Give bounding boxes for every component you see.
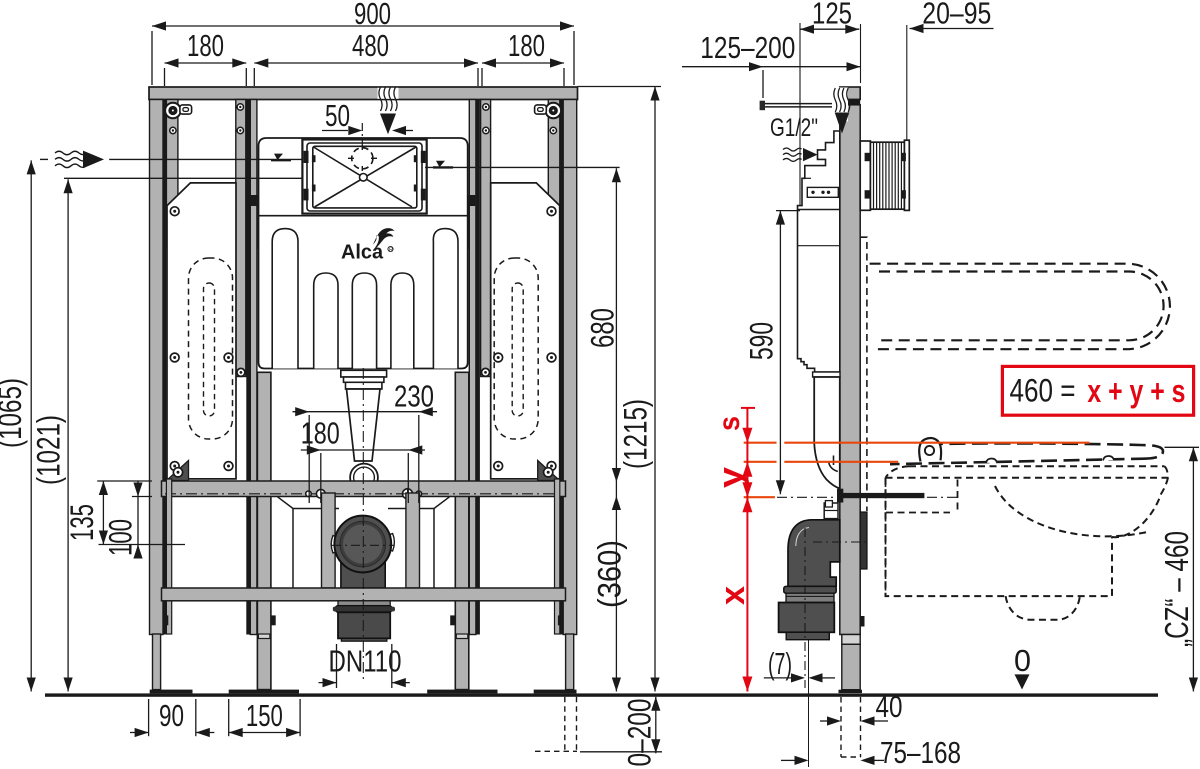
svg-text:x + y + s: x + y + s bbox=[1087, 373, 1185, 409]
svg-text:R: R bbox=[389, 248, 393, 254]
svg-text:G1/2": G1/2" bbox=[770, 114, 818, 142]
svg-text:135: 135 bbox=[64, 504, 100, 541]
svg-text:680: 680 bbox=[585, 308, 621, 348]
svg-text:0–200: 0–200 bbox=[622, 699, 658, 767]
svg-text:460 =: 460 = bbox=[1010, 373, 1076, 409]
svg-text:s: s bbox=[713, 416, 746, 431]
svg-text:150: 150 bbox=[246, 698, 283, 733]
svg-text:180: 180 bbox=[508, 28, 545, 63]
svg-text:125: 125 bbox=[812, 0, 852, 31]
svg-text:50: 50 bbox=[325, 98, 350, 133]
svg-text:„CZ“ – 460: „CZ“ – 460 bbox=[1158, 531, 1195, 647]
svg-text:(1021): (1021) bbox=[31, 415, 67, 485]
svg-text:(7): (7) bbox=[768, 646, 792, 681]
svg-text:100: 100 bbox=[103, 519, 139, 556]
svg-text:230: 230 bbox=[394, 379, 434, 414]
svg-text:180: 180 bbox=[301, 416, 340, 451]
svg-text:20–95: 20–95 bbox=[922, 0, 991, 31]
svg-text:180: 180 bbox=[187, 28, 224, 63]
svg-text:0: 0 bbox=[1014, 643, 1031, 678]
svg-text:40: 40 bbox=[876, 689, 903, 724]
svg-text:x: x bbox=[714, 586, 752, 605]
svg-text:90: 90 bbox=[159, 698, 184, 733]
svg-text:590: 590 bbox=[744, 322, 780, 360]
svg-text:480: 480 bbox=[352, 28, 389, 63]
svg-text:900: 900 bbox=[354, 0, 391, 31]
svg-text:(1065): (1065) bbox=[0, 378, 28, 448]
svg-text:(360): (360) bbox=[592, 540, 628, 608]
svg-text:DN110: DN110 bbox=[329, 644, 402, 679]
svg-text:125–200: 125–200 bbox=[700, 30, 795, 65]
svg-text:75–168: 75–168 bbox=[880, 735, 961, 769]
svg-text:y: y bbox=[712, 467, 750, 488]
svg-text:(1215): (1215) bbox=[618, 399, 654, 469]
